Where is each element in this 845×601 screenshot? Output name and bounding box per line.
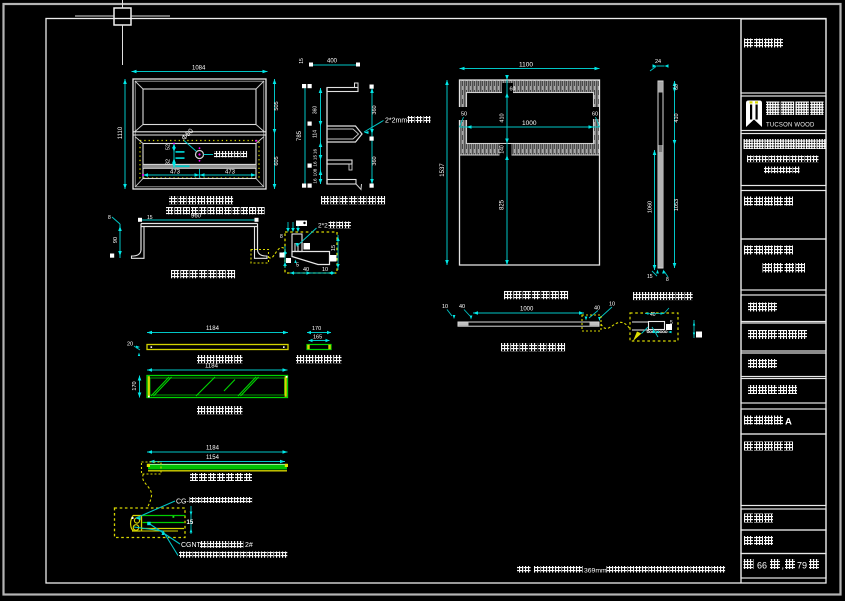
svg-text:90: 90	[113, 237, 119, 243]
svg-text:360: 360	[313, 106, 319, 115]
svg-text:50: 50	[461, 112, 467, 118]
svg-text:15: 15	[147, 215, 153, 221]
svg-text:410: 410	[674, 113, 680, 122]
svg-text:400: 400	[327, 59, 338, 65]
svg-text:1184: 1184	[206, 326, 220, 332]
svg-text:40: 40	[303, 267, 309, 273]
svg-text:1154: 1154	[206, 455, 220, 461]
svg-text:1537: 1537	[440, 163, 446, 177]
svg-text:505: 505	[274, 101, 280, 110]
svg-text:8: 8	[108, 215, 111, 221]
svg-text:114: 114	[313, 130, 319, 138]
svg-text:785: 785	[297, 130, 303, 141]
svg-text:2#: 2#	[245, 542, 253, 549]
svg-text:5: 5	[296, 263, 299, 269]
svg-text:1000: 1000	[522, 120, 537, 127]
svg-text:473: 473	[225, 170, 236, 176]
svg-text:1053: 1053	[674, 199, 680, 211]
svg-text:1060: 1060	[648, 201, 654, 213]
svg-text:40: 40	[459, 304, 465, 310]
svg-text:369mm: 369mm	[584, 568, 607, 575]
svg-text:16: 16	[313, 161, 318, 167]
svg-text:8: 8	[280, 234, 283, 240]
svg-text:16: 16	[313, 178, 318, 184]
svg-text:360: 360	[372, 105, 378, 114]
svg-text:960: 960	[191, 214, 202, 220]
svg-text:108: 108	[313, 168, 318, 176]
svg-text:1110: 1110	[118, 126, 124, 139]
svg-text:40: 40	[594, 306, 600, 312]
svg-text:15: 15	[313, 155, 318, 161]
svg-text:15: 15	[299, 58, 305, 64]
svg-text:40: 40	[650, 312, 656, 318]
svg-text:605: 605	[274, 156, 280, 165]
svg-text:1000: 1000	[520, 307, 534, 313]
svg-text:410: 410	[500, 113, 506, 122]
svg-text:15: 15	[187, 520, 194, 526]
svg-text:60: 60	[674, 84, 680, 90]
svg-text:473: 473	[170, 170, 181, 176]
svg-text:8: 8	[666, 277, 669, 283]
svg-text:1084: 1084	[192, 66, 206, 72]
svg-text:165: 165	[313, 335, 322, 341]
svg-text:79: 79	[797, 561, 807, 571]
svg-text:140: 140	[500, 145, 506, 154]
svg-text:60: 60	[592, 112, 598, 118]
svg-text:15: 15	[331, 245, 337, 251]
svg-text:CG-: CG-	[176, 499, 190, 506]
svg-text:2*2mm: 2*2mm	[385, 118, 407, 125]
svg-text:10: 10	[442, 304, 448, 310]
svg-text:10: 10	[322, 267, 328, 273]
svg-text:A: A	[785, 417, 792, 428]
svg-text:52: 52	[166, 144, 172, 150]
svg-text:360: 360	[372, 156, 378, 165]
svg-text:15: 15	[647, 274, 653, 280]
svg-text:1184: 1184	[206, 446, 220, 452]
svg-text:32: 32	[166, 159, 172, 165]
svg-text:10: 10	[609, 302, 615, 308]
svg-text:TUCSON WOOD: TUCSON WOOD	[766, 123, 815, 129]
svg-text:16: 16	[313, 149, 318, 155]
svg-text:825: 825	[500, 199, 506, 210]
svg-text:170: 170	[312, 326, 321, 332]
svg-text:24: 24	[655, 59, 661, 65]
svg-text:2*2: 2*2	[318, 223, 328, 230]
svg-text:5: 5	[670, 320, 673, 326]
svg-text:20: 20	[127, 342, 133, 348]
svg-text:66: 66	[757, 561, 767, 571]
svg-text:1100: 1100	[519, 62, 533, 69]
svg-text:170: 170	[132, 381, 138, 390]
svg-text:,: ,	[782, 561, 785, 571]
svg-text:60: 60	[510, 87, 516, 93]
svg-text:1184: 1184	[205, 364, 219, 370]
